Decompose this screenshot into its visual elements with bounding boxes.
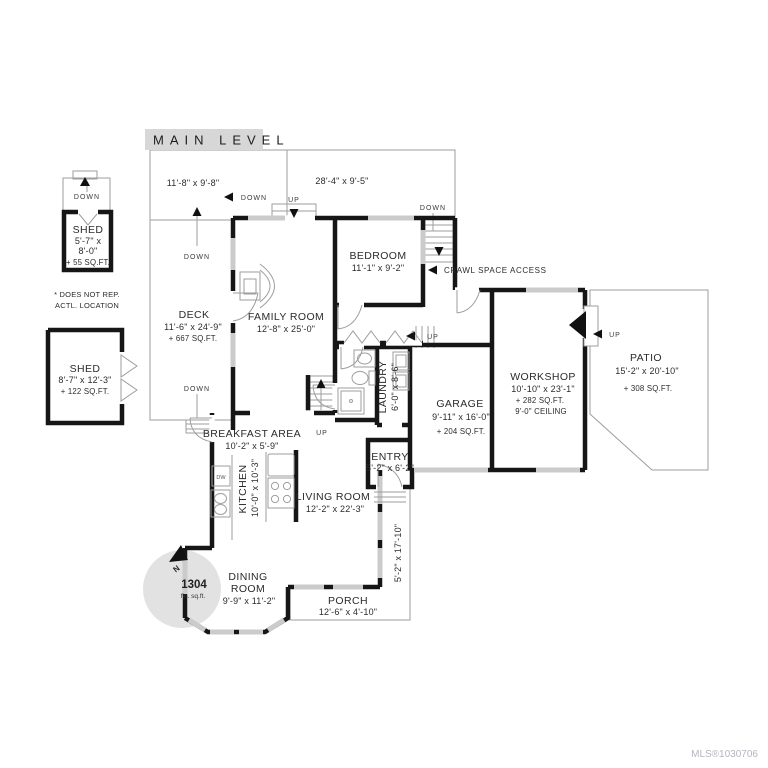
shed1-label: SHED: [73, 224, 104, 236]
dining-room-label1: DINING: [228, 571, 267, 583]
shed1-note1: * DOES NOT REP.: [54, 290, 120, 299]
shed1-area: + 55 SQ.FT.: [66, 258, 110, 267]
deck-up-arrow: [193, 207, 202, 216]
workshop-area: + 282 SQ.FT.: [516, 396, 565, 405]
patio-label: PATIO: [630, 352, 662, 364]
patio-up-label: UP: [609, 332, 621, 339]
direction-labels: DOWN DOWN DOWN DOWN DOWN UP UP UP UP CRA…: [74, 194, 621, 481]
floor-plan-drawing: MAIN LEVEL 11'-8" x 9'-8" 28'-4" x 9'-5"…: [0, 0, 768, 768]
shed2-area: + 122 SQ.FT.: [61, 387, 110, 396]
bedroom-dims: 11'-1" x 9'-2": [352, 263, 404, 273]
kitchen-label: KITCHEN: [237, 465, 249, 514]
porch-dims: 12'-6" x 4'-10": [319, 607, 377, 617]
top-steps-up-label: UP: [288, 197, 300, 204]
workshop-ceiling: 9'-0" CEILING: [515, 407, 567, 416]
porch-label: PORCH: [328, 595, 368, 607]
patio-dims: 15'-2" x 20'-10": [615, 366, 679, 376]
bathroom-fixtures: [338, 350, 375, 414]
dishwasher-label: DW: [216, 475, 226, 481]
upper-deck-left-dims: 11'-8" x 9'-8": [167, 178, 219, 188]
garage-area: + 204 SQ.FT.: [437, 427, 486, 436]
main-stairs-up-label: UP: [316, 430, 328, 437]
deck-upper-down-label: DOWN: [184, 254, 210, 261]
deck-label: DECK: [179, 309, 210, 321]
stairs-down-label: DOWN: [420, 205, 446, 212]
shed2-dims: 8'-7" x 12'-3": [58, 375, 111, 385]
fridge: [268, 454, 294, 476]
shed1-dim1: 5'-7" x: [75, 236, 102, 246]
workshop-label: WORKSHOP: [510, 371, 576, 383]
crawl-arrow: [428, 266, 437, 275]
hall-up-label: UP: [427, 334, 439, 341]
title-block: MAIN LEVEL: [145, 129, 290, 150]
breakfast-label: BREAKFAST AREA: [203, 428, 301, 440]
family-room-label: FAMILY ROOM: [248, 311, 324, 323]
total-sqft-label: fin. sq.ft.: [181, 593, 206, 600]
shed1-dim2: 8'-0": [79, 246, 98, 256]
deck-area: + 667 SQ.FT.: [169, 334, 218, 343]
total-sqft: 1304: [181, 579, 207, 591]
upper-deck-top-dims: 28'-4" x 9'-5": [315, 176, 368, 186]
deck-down-label: DOWN: [241, 195, 267, 202]
shed2-label: SHED: [70, 363, 101, 375]
mls-watermark: MLS®1030706: [691, 749, 758, 760]
page-title: MAIN LEVEL: [153, 133, 290, 148]
deck-lower-down-label: DOWN: [184, 386, 210, 393]
crawl-space-label: CRAWL SPACE ACCESS: [444, 266, 547, 275]
bedroom-label: BEDROOM: [349, 250, 406, 262]
shed1-down-label: DOWN: [74, 194, 100, 201]
dining-room-dims: 9'-9" x 11'-2": [223, 596, 275, 606]
family-room-dims: 12'-8" x 25'-0": [257, 324, 315, 334]
patio-outline: [590, 290, 708, 470]
entry-label: ENTRY: [371, 451, 408, 463]
deck-down-arrow: [224, 193, 233, 202]
main-stairs-up-arrow: [317, 379, 326, 388]
patio-landing: [584, 306, 598, 346]
kitchen-dims: 10'-0" x 10'-3": [250, 459, 260, 517]
garage-dims: 9'-11" x 16'-0": [432, 412, 490, 422]
workshop-dims: 10'-10" x 23'-1": [511, 384, 575, 394]
side-porch-dims: 5'-2" x 17'-10": [393, 524, 403, 582]
floor-plan-page: MAIN LEVEL 11'-8" x 9'-8" 28'-4" x 9'-5"…: [0, 0, 768, 768]
shed1-note2: ACTL. LOCATION: [55, 301, 119, 310]
deck-outline: [150, 150, 233, 420]
stove: [268, 478, 294, 508]
patio-area: + 308 SQ.FT.: [624, 384, 673, 393]
living-room-dims: 12'-2" x 22'-3": [306, 504, 364, 514]
living-room-label: LIVING ROOM: [296, 491, 370, 503]
breakfast-dims: 10'-2" x 5'-9": [225, 441, 278, 451]
laundry-dims: 6'-0" x 8'-6": [390, 363, 400, 411]
workshop-door-leaf: [569, 311, 586, 339]
deck-dims: 11'-6" x 24'-9": [164, 322, 222, 332]
laundry-label: LAUNDRY: [377, 361, 389, 414]
garage-label: GARAGE: [436, 398, 483, 410]
fireplace: [240, 264, 275, 308]
entry-dims: 5'-2" x 6'-2": [366, 463, 414, 473]
dining-room-label2: ROOM: [231, 583, 265, 595]
